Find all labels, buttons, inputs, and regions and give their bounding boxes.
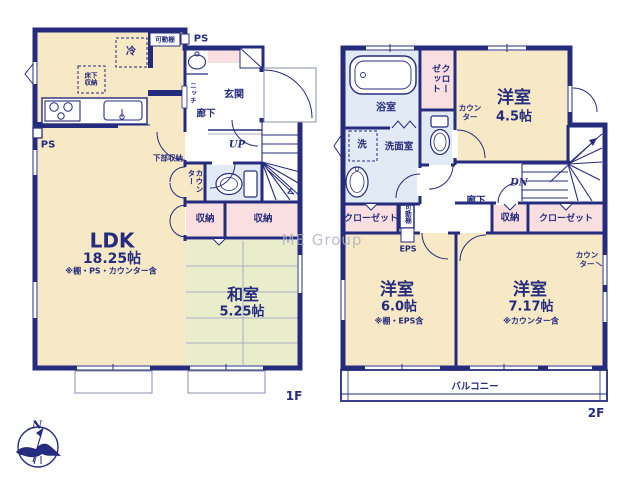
sink-icon	[104, 101, 142, 120]
ldk-note-label: ※棚・PS・カウンター含	[65, 266, 156, 275]
washitsu-name-label: 和室	[227, 286, 259, 304]
genkan-label: 玄関	[224, 89, 244, 101]
counter-label-1f: カウンター	[187, 170, 203, 195]
stove-icon	[45, 101, 80, 121]
up-label: UP	[229, 139, 245, 151]
ps-box-top	[181, 34, 189, 44]
ps-box-side	[33, 128, 42, 138]
underfloor-storage-label: 床下収納	[83, 73, 99, 88]
floor-1f	[25, 30, 316, 393]
movable-shelf-label-1f: 可動棚	[155, 36, 175, 43]
compass-north-label: N	[32, 419, 42, 432]
toilet-icon-2f	[431, 116, 450, 155]
room-a-name-label: 洋室	[497, 89, 531, 109]
bath-label: 浴室	[376, 102, 396, 114]
ldk-size-label: 18.25帖	[83, 251, 141, 267]
washroom-label: 洗面室	[385, 143, 414, 154]
compass-icon	[16, 427, 61, 467]
laundry-label: 洗	[357, 141, 367, 152]
washstand-icon	[346, 167, 368, 197]
room-c-name-label: 洋室	[513, 281, 547, 301]
floor-label-1f: 1F	[286, 390, 303, 404]
window-bay-boxes	[75, 371, 265, 393]
ps-label-side: PS	[41, 139, 56, 151]
closet-top-label: クローゼット	[430, 64, 449, 98]
stairs-1f	[262, 122, 300, 200]
entrance-door-swing	[264, 68, 316, 122]
ldk-name-label: LDK	[90, 230, 135, 253]
storage-b-label-1f: 収納	[253, 215, 272, 226]
bathtub-icon	[350, 56, 416, 94]
compass-bird-silhouette	[16, 444, 61, 458]
lower-cabinet-label: 下部収納	[153, 155, 183, 164]
storage-label-2f: 収納	[500, 214, 519, 225]
ps-label-top: PS	[194, 33, 209, 45]
closet-left-label: クローゼット	[344, 214, 398, 224]
room-b-size-label: 6.0帖	[381, 301, 417, 316]
fridge-label: 冷	[126, 46, 136, 58]
toilet-icon-1f	[216, 171, 257, 197]
room-c-note-label: ※カウンター含	[503, 316, 559, 325]
room-b-name-label: 洋室	[380, 281, 414, 301]
room-b-note-label: ※棚・EPS含	[375, 316, 424, 325]
storage-a-label-1f: 収納	[195, 215, 214, 226]
eps-label: EPS	[399, 244, 416, 253]
balcony-label: バルコニー	[451, 383, 498, 394]
closet-right-label: クローゼット	[539, 214, 593, 224]
room-c-size-label: 7.17帖	[508, 301, 553, 316]
watermark: ME Group	[282, 231, 363, 249]
movable-shelf-label-2f: 可動棚	[404, 204, 411, 230]
niche-label: ニッチ	[189, 82, 196, 112]
counter-b-label: カウンター	[574, 251, 600, 268]
eps-box	[401, 228, 414, 242]
hall-label-1f: 廊下	[196, 110, 215, 121]
washitsu-size-label: 5.25帖	[219, 306, 264, 321]
dn-label: DN	[510, 177, 528, 189]
floorplan-page: 可動棚 PS 冷 床下収納 PS ニッチ 玄関 廊下 UP 下部収納 カウンター…	[0, 0, 640, 480]
kitchen-fixtures	[42, 98, 147, 124]
niche-notch	[182, 86, 187, 108]
hall-label-2f: 廊下	[466, 197, 485, 208]
room-a-size-label: 4.5帖	[496, 111, 532, 126]
floor-label-2f: 2F	[588, 407, 605, 421]
counter-a-label: カウンター	[457, 104, 483, 121]
